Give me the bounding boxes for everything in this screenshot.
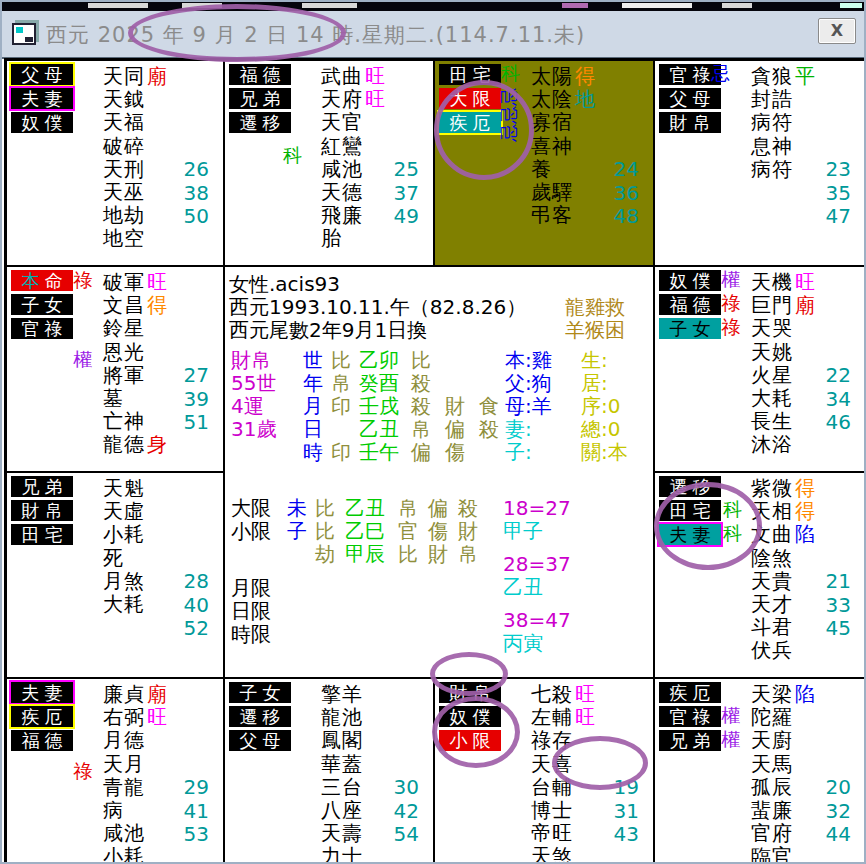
star-age-number: 24 (614, 157, 651, 181)
family-zodiac: 本:雞 (505, 349, 552, 371)
bazi-hidden-god: 傷 (445, 441, 465, 463)
palace-label: 子女 (229, 682, 291, 703)
star-row: 天機旺 (751, 271, 863, 294)
star-row: 喜神 (531, 135, 651, 158)
transformation-mark: 權 (721, 269, 740, 289)
star-age-number: 50 (184, 204, 221, 228)
star-name: 伏兵 (751, 637, 795, 664)
star-brightness: 陷 (795, 681, 815, 708)
limit-hidden-god: 財 (428, 543, 448, 565)
star-age-number: 45 (826, 616, 863, 640)
star-row: 龍池 (321, 706, 431, 729)
star-row: 鈴星 (103, 317, 221, 340)
star-age-number: 47 (826, 204, 863, 228)
transformation-mark-rotated: 忌忌忌 (499, 87, 519, 141)
star-age-number: 41 (184, 799, 221, 823)
star-age-number: 40 (184, 593, 221, 617)
star-row: 天月 (103, 753, 221, 776)
palace-label-column: 本命子女官祿 (11, 270, 73, 342)
profile-note: 龍雞救 (565, 296, 625, 318)
star-list: 天機旺巨門廟天哭天姚火星22大耗34長生46沐浴 (751, 271, 863, 457)
center-info-panel: 女性.acis93西元1993.10.11.午（82.8.26）西元尾數2年9月… (224, 266, 654, 678)
transformation-mark: 權 (721, 729, 740, 749)
palace-label: 子女 (659, 318, 721, 339)
app-icon (12, 23, 36, 45)
bazi-hidden-god: 殺 (411, 395, 431, 417)
star-age-number: 20 (826, 775, 863, 799)
star-row: 天鉞 (103, 88, 221, 111)
family-zodiac: 母:羊 (505, 395, 552, 417)
palace-cell-mid2-left[interactable]: 兄弟財帛田宅天魁天虛小耗死月煞28大耗4052 (6, 472, 224, 678)
bazi-god: 印 (331, 441, 351, 463)
bazi-hidden-god: 殺 (411, 372, 431, 394)
star-row: 天府旺 (321, 88, 431, 111)
transformation-mark: 祿 (721, 293, 740, 313)
star-row: 月德 (103, 729, 221, 752)
star-row: 天巫38 (103, 181, 221, 204)
star-list: 貪狼平封誥病符息神病符233547 (751, 65, 863, 227)
star-row: 天梁陷 (751, 683, 863, 706)
star-row: 天官 (321, 111, 431, 134)
star-row: 破軍旺 (103, 271, 221, 294)
star-row: 天廚 (751, 729, 863, 752)
star-row: 天刑26 (103, 158, 221, 181)
star-row: 歲驛36 (531, 181, 651, 204)
bazi-hidden-god: 偏 (445, 418, 465, 440)
star-row: 天福 (103, 111, 221, 134)
palace-cell-mid2-right[interactable]: 遷移田宅夫妻科科紫微得天相得文曲陷陰煞天貴21天才33斗君45伏兵 (654, 472, 866, 678)
star-age-number: 39 (184, 387, 221, 411)
limit-god: 比 (315, 497, 335, 519)
palace-cell-top-left[interactable]: 父母夫妻奴僕天同廟天鉞天福破碎天刑26天巫38地劫50地空 (6, 60, 224, 266)
star-row: 天煞 (531, 845, 651, 864)
star-row: 孤辰20 (751, 776, 863, 799)
bazi-hidden-god: 財 (445, 395, 465, 417)
star-age-number: 31 (614, 799, 651, 823)
star-age-number: 48 (614, 204, 651, 228)
star-row: 地空 (103, 227, 221, 250)
limit-branch: 子 (287, 520, 307, 542)
bazi-hidden-god: 帛 (411, 418, 431, 440)
bazi-left-label: 財帛 (231, 349, 271, 371)
star-age-number: 19 (614, 775, 651, 799)
star-row: 八座42 (321, 799, 431, 822)
star-row: 博士31 (531, 799, 651, 822)
decade-stem-branch: 乙丑 (503, 576, 543, 598)
bazi-god: 印 (331, 395, 351, 417)
palace-label: 疾厄 (11, 706, 73, 727)
star-row: 長生46 (751, 410, 863, 433)
star-row: 破碎 (103, 135, 221, 158)
palace-label: 官祿 (659, 706, 721, 727)
star-row: 死 (103, 547, 221, 570)
star-name: 大耗 (103, 591, 147, 618)
star-row: 太陰地 (531, 88, 651, 111)
residence-info: 關:本 (581, 441, 628, 463)
limit-god: 劫 (315, 543, 335, 565)
star-age-number: 28 (184, 569, 221, 593)
star-list: 天梁陷陀羅天廚天馬孤辰20蜚廉32官府44臨官 (751, 683, 863, 864)
palace-label: 本命 (11, 270, 73, 291)
star-age-number: 54 (394, 822, 431, 846)
star-row: 病41 (103, 799, 221, 822)
star-row: 貪狼平 (751, 65, 863, 88)
star-name: 龍德 (103, 431, 147, 458)
family-zodiac: 子: (505, 441, 532, 463)
palace-label: 遷移 (659, 476, 721, 497)
star-row: 天姚 (751, 341, 863, 364)
palace-label: 兄弟 (11, 476, 73, 497)
bazi-hidden-god: 偏 (411, 441, 431, 463)
palace-label-column: 兄弟財帛田宅 (11, 476, 73, 548)
star-age-number: 21 (826, 569, 863, 593)
star-age-number: 23 (826, 157, 863, 181)
limit-hidden-god: 帛 (458, 543, 478, 565)
star-row: 華蓋 (321, 753, 431, 776)
star-row: 胎 (321, 227, 431, 250)
transformation-mark: 忌 (711, 63, 730, 83)
palace-label: 奴僕 (659, 270, 721, 291)
star-age-number: 36 (614, 181, 651, 205)
star-row: 35 (751, 181, 863, 204)
transformation-mark: 科 (723, 499, 742, 519)
palace-label: 夫妻 (11, 88, 73, 109)
palace-label: 財帛 (11, 500, 73, 521)
star-age-number: 43 (614, 822, 651, 846)
palace-label: 夫妻 (11, 682, 73, 703)
star-row: 力士 (321, 845, 431, 864)
star-list: 擎羊龍池鳳閣華蓋三台30八座42天壽54力士 (321, 683, 431, 864)
star-row: 三台30 (321, 776, 431, 799)
star-row: 巨門廟 (751, 294, 863, 317)
transformation-mark: 科 (723, 523, 742, 543)
palace-cell-top-mid-left[interactable]: 福德兄弟遷移科武曲旺天府旺天官紅鸞咸池25天德37飛廉49胎 (224, 60, 434, 266)
limit-stem-branch: 乙巳 (345, 520, 385, 542)
palace-label-column: 財帛奴僕小限 (439, 682, 501, 754)
star-list: 太陽得太陰地寡宿喜神養24歲驛36弔客48 (531, 65, 651, 227)
profile-birth-line: 西元1993.10.11.午（82.8.26） (229, 296, 526, 318)
palace-label-column: 田宅大限疾厄 (439, 64, 501, 136)
palace-label: 財帛 (439, 682, 501, 703)
palace-label-column: 遷移田宅夫妻 (659, 476, 721, 548)
star-row: 廉貞廟 (103, 683, 221, 706)
star-row: 小耗 (103, 845, 221, 864)
palace-label-column: 夫妻疾厄福德 (11, 682, 73, 754)
star-row: 病符 (751, 111, 863, 134)
star-name: 弔客 (531, 202, 575, 229)
bazi-stem-branch: 壬午 (359, 441, 399, 463)
palace-label: 田宅 (659, 500, 721, 521)
star-row: 息神 (751, 135, 863, 158)
star-age-number: 30 (394, 775, 431, 799)
palace-label: 田宅 (439, 64, 501, 85)
close-button[interactable]: X (818, 18, 856, 44)
residence-info: 居: (581, 372, 608, 394)
star-row: 天貴21 (751, 570, 863, 593)
star-age-number: 49 (394, 204, 431, 228)
palace-label-column: 父母夫妻奴僕 (11, 64, 73, 136)
bazi-pillar-label: 日 (303, 418, 323, 440)
limit-hidden-god: 帛 (398, 497, 418, 519)
bazi-stem-branch: 壬戌 (359, 395, 399, 417)
star-row: 天才33 (751, 593, 863, 616)
star-age-number: 37 (394, 181, 431, 205)
decade-range: 18=27 (503, 497, 571, 519)
palace-label: 大限 (439, 88, 501, 109)
star-row: 地劫50 (103, 204, 221, 227)
limit-label: 時限 (231, 623, 271, 645)
star-row: 天馬 (751, 753, 863, 776)
star-row: 文昌得 (103, 294, 221, 317)
star-age-number: 42 (394, 799, 431, 823)
decade-range: 28=37 (503, 553, 571, 575)
palace-label: 疾厄 (659, 682, 721, 703)
bazi-left-label: 55世 (231, 372, 276, 394)
limit-stem-branch: 甲辰 (345, 543, 385, 565)
bazi-hidden-god: 比 (411, 349, 431, 371)
palace-cell-mid1-right[interactable]: 奴僕福德子女權祿祿天機旺巨門廟天哭天姚火星22大耗34長生46沐浴 (654, 266, 866, 472)
star-brightness: 旺 (365, 86, 385, 113)
star-name: 臨官 (751, 843, 795, 864)
star-row: 紫微得 (751, 477, 863, 500)
bazi-god: 帛 (331, 372, 351, 394)
bazi-left-label: 31歲 (231, 418, 276, 440)
star-row: 天德37 (321, 181, 431, 204)
star-row: 左輔旺 (531, 706, 651, 729)
app-window: 西元 2025 年 9 月 2 日 14 時.星期二.(114.7.11.未) … (0, 0, 866, 864)
palace-label: 子女 (11, 294, 73, 315)
star-age-number: 34 (826, 387, 863, 411)
bazi-stem-branch: 乙丑 (359, 418, 399, 440)
star-row: 天哭 (751, 317, 863, 340)
star-age-number: 29 (184, 775, 221, 799)
bazi-left-label: 4運 (231, 395, 264, 417)
star-brightness: 廟 (147, 63, 167, 90)
palace-label: 父母 (659, 88, 721, 109)
star-row: 火星22 (751, 364, 863, 387)
star-brightness: 旺 (575, 704, 595, 731)
palace-label-column: 福德兄弟遷移 (229, 64, 291, 136)
star-row: 墓39 (103, 387, 221, 410)
star-row: 亡神51 (103, 410, 221, 433)
star-row: 祿存 (531, 729, 651, 752)
star-age-number: 26 (184, 157, 221, 181)
star-row: 小耗 (103, 523, 221, 546)
star-age-number: 25 (394, 157, 431, 181)
star-row: 天魁 (103, 477, 221, 500)
star-brightness: 平 (795, 63, 815, 90)
palace-cell-bottom-mid-right[interactable]: 財帛奴僕小限七殺旺左輔旺祿存天喜台輔19博士31帝旺43天煞 (434, 678, 654, 864)
star-row: 飛廉49 (321, 204, 431, 227)
star-row: 大耗40 (103, 593, 221, 616)
star-list: 廉貞廟右弼旺月德天月青龍29病41咸池53小耗 (103, 683, 221, 864)
title-bar[interactable]: 西元 2025 年 9 月 2 日 14 時.星期二.(114.7.11.未) … (2, 11, 864, 59)
palace-label-column: 子女遷移父母 (229, 682, 291, 754)
bazi-stem-branch: 乙卯 (359, 349, 399, 371)
transformation-mark: 權 (73, 349, 92, 369)
palace-label: 兄弟 (229, 88, 291, 109)
palace-label: 遷移 (229, 706, 291, 727)
star-row: 斗君45 (751, 616, 863, 639)
star-row: 弔客48 (531, 204, 651, 227)
star-row: 武曲旺 (321, 65, 431, 88)
palace-cell-bottom-right[interactable]: 疾厄官祿兄弟權權天梁陷陀羅天廚天馬孤辰20蜚廉32官府44臨官 (654, 678, 866, 864)
star-name: 胎 (321, 225, 365, 252)
palace-label: 疾厄 (439, 112, 501, 133)
star-row: 鳳閣 (321, 729, 431, 752)
star-row: 右弼旺 (103, 706, 221, 729)
star-row: 大耗34 (751, 387, 863, 410)
limit-label: 小限 (231, 520, 271, 542)
palace-label: 官祿 (11, 318, 73, 339)
transformation-mark: 祿 (73, 270, 92, 290)
star-row: 文曲陷 (751, 523, 863, 546)
star-age-number: 33 (826, 593, 863, 617)
transformation-mark: 權 (721, 705, 740, 725)
residence-info: 生: (581, 349, 608, 371)
bazi-stem-branch: 癸酉 (359, 372, 399, 394)
star-age-number: 22 (826, 363, 863, 387)
ziwei-chart-grid: 父母夫妻奴僕天同廟天鉞天福破碎天刑26天巫38地劫50地空 福德兄弟遷移科武曲旺… (4, 58, 864, 864)
star-age-number: 51 (184, 410, 221, 434)
palace-cell-bottom-mid-left[interactable]: 子女遷移父母擎羊龍池鳳閣華蓋三台30八座42天壽54力士 (224, 678, 434, 864)
residence-info: 總:0 (581, 418, 620, 440)
palace-label-column: 疾厄官祿兄弟 (659, 682, 721, 754)
star-brightness: 身 (147, 431, 167, 458)
star-row: 52 (103, 616, 221, 639)
star-row: 龍德身 (103, 433, 221, 456)
palace-cell-bottom-left[interactable]: 夫妻疾厄福德祿廉貞廟右弼旺月德天月青龍29病41咸池53小耗 (6, 678, 224, 864)
limit-god: 比 (315, 520, 335, 542)
star-brightness: 得 (147, 292, 167, 319)
star-row: 沐浴 (751, 433, 863, 456)
star-age-number: 35 (826, 181, 863, 205)
star-name: 地空 (103, 225, 147, 252)
palace-cell-top-right[interactable]: 官祿父母財帛忌貪狼平封誥病符息神病符233547 (654, 60, 866, 266)
palace-label: 田宅 (11, 524, 73, 545)
star-age-number: 53 (184, 822, 221, 846)
star-row: 咸池53 (103, 822, 221, 845)
family-zodiac: 妻: (505, 418, 532, 440)
star-name: 病符 (751, 156, 795, 183)
star-age-number: 46 (826, 410, 863, 434)
star-brightness: 地 (575, 86, 595, 113)
star-row: 陰煞 (751, 547, 863, 570)
star-row: 天相得 (751, 500, 863, 523)
star-row: 官府44 (751, 822, 863, 845)
star-age-number: 38 (184, 181, 221, 205)
decade-stem-branch: 丙寅 (503, 632, 543, 654)
star-row: 蜚廉32 (751, 799, 863, 822)
palace-label: 福德 (11, 730, 73, 751)
star-name: 力士 (321, 843, 365, 864)
palace-label-column: 奴僕福德子女 (659, 270, 721, 342)
star-list: 天同廟天鉞天福破碎天刑26天巫38地劫50地空 (103, 65, 221, 251)
star-brightness: 廟 (795, 292, 815, 319)
limit-label: 月限 (231, 577, 271, 599)
star-row: 養24 (531, 158, 651, 181)
profile-name: 女性.acis93 (229, 273, 340, 295)
palace-label: 財帛 (659, 112, 721, 133)
star-name: 沐浴 (751, 431, 795, 458)
palace-label: 兄弟 (659, 730, 721, 751)
palace-label: 父母 (229, 730, 291, 751)
star-row: 天喜 (531, 753, 651, 776)
palace-cell-top-mid-right[interactable]: 田宅大限疾厄科忌忌忌太陽得太陰地寡宿喜神養24歲驛36弔客48 (434, 60, 654, 266)
star-row: 咸池25 (321, 158, 431, 181)
palace-label: 福德 (659, 294, 721, 315)
transformation-mark: 祿 (721, 317, 740, 337)
transformation-mark: 科 (283, 145, 302, 165)
limit-hidden-god: 偏 (428, 497, 448, 519)
star-brightness: 旺 (147, 704, 167, 731)
star-name: 小耗 (103, 843, 147, 864)
star-row: 恩光 (103, 341, 221, 364)
star-row: 伏兵 (751, 639, 863, 662)
star-age-number: 27 (184, 363, 221, 387)
palace-label: 奴僕 (439, 706, 501, 727)
limit-hidden-god: 傷 (428, 520, 448, 542)
star-row: 青龍29 (103, 776, 221, 799)
residence-info: 序:0 (581, 395, 620, 417)
star-list: 破軍旺文昌得鈴星恩光將軍27墓39亡神51龍德身 (103, 271, 221, 457)
star-row: 寡宿 (531, 111, 651, 134)
star-list: 七殺旺左輔旺祿存天喜台輔19博士31帝旺43天煞 (531, 683, 651, 864)
star-age-number: 52 (184, 616, 221, 640)
star-brightness: 陷 (795, 521, 815, 548)
star-row: 臨官 (751, 845, 863, 864)
decade-stem-branch: 甲子 (503, 520, 543, 542)
star-row: 擎羊 (321, 683, 431, 706)
star-row: 月煞28 (103, 570, 221, 593)
star-name: 天煞 (531, 843, 575, 864)
limit-hidden-god: 官 (398, 520, 418, 542)
palace-label: 奴僕 (11, 112, 73, 133)
star-list: 武曲旺天府旺天官紅鸞咸池25天德37飛廉49胎 (321, 65, 431, 251)
palace-cell-mid1-left[interactable]: 本命子女官祿祿權破軍旺文昌得鈴星恩光將軍27墓39亡神51龍德身 (6, 266, 224, 472)
star-row: 封誥 (751, 88, 863, 111)
star-row: 天壽54 (321, 822, 431, 845)
transformation-mark: 科 (501, 63, 520, 83)
limit-hidden-god: 財 (458, 520, 478, 542)
bazi-pillar-label: 時 (303, 441, 323, 463)
bazi-pillar-label: 世 (303, 349, 323, 371)
profile-note: 羊猴困 (565, 319, 625, 341)
limit-branch: 未 (287, 497, 307, 519)
limit-stem-branch: 乙丑 (345, 497, 385, 519)
star-list: 紫微得天相得文曲陷陰煞天貴21天才33斗君45伏兵 (751, 477, 863, 663)
palace-label: 福德 (229, 64, 291, 85)
limit-hidden-god: 比 (398, 543, 418, 565)
bazi-god: 比 (331, 349, 351, 371)
decade-range: 38=47 (503, 609, 571, 631)
star-row: 七殺旺 (531, 683, 651, 706)
star-row: 太陽得 (531, 65, 651, 88)
palace-label: 父母 (11, 64, 73, 85)
window-title: 西元 2025 年 9 月 2 日 14 時.星期二.(114.7.11.未) (46, 21, 585, 49)
star-row: 病符23 (751, 158, 863, 181)
star-list: 天魁天虛小耗死月煞28大耗4052 (103, 477, 221, 639)
star-row: 陀羅 (751, 706, 863, 729)
bazi-hidden-god: 殺 (479, 418, 499, 440)
palace-label: 夫妻 (659, 524, 721, 545)
background-window-edge (2, 2, 866, 11)
transformation-mark: 祿 (73, 761, 92, 781)
palace-label: 遷移 (229, 112, 291, 133)
bazi-pillar-label: 月 (303, 395, 323, 417)
bazi-pillar-label: 年 (303, 372, 323, 394)
bazi-hidden-god: 食 (479, 395, 499, 417)
